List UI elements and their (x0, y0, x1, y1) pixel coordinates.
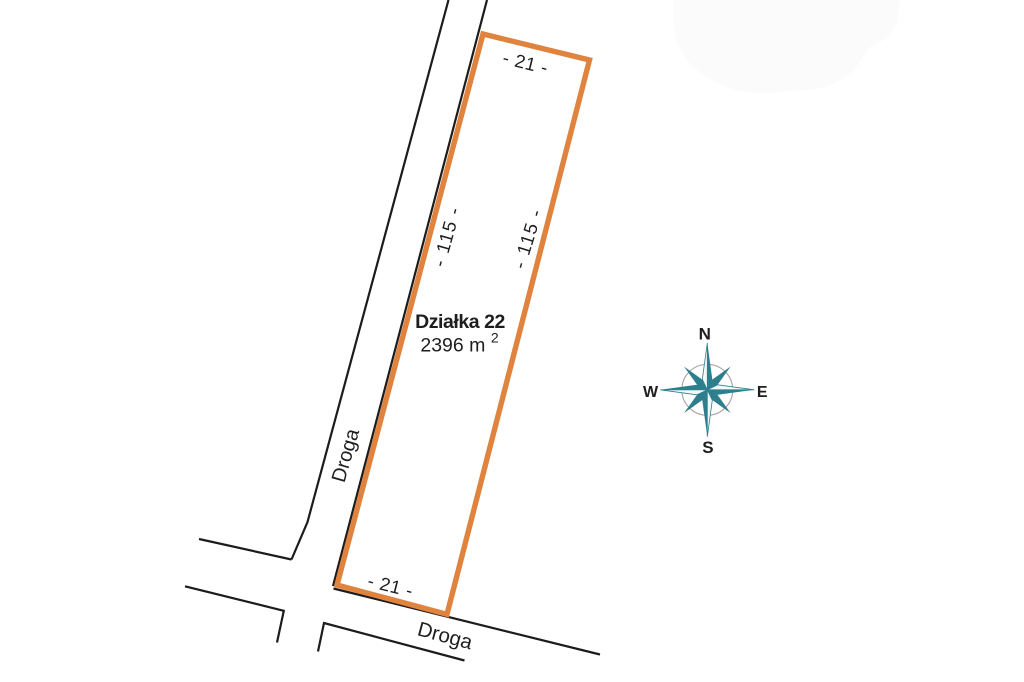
svg-text:2396 m 2: 2396 m 2 (420, 330, 498, 357)
svg-text:E: E (757, 384, 768, 401)
svg-text:S: S (702, 438, 713, 457)
svg-text:W: W (643, 384, 659, 401)
svg-text:N: N (699, 325, 711, 344)
